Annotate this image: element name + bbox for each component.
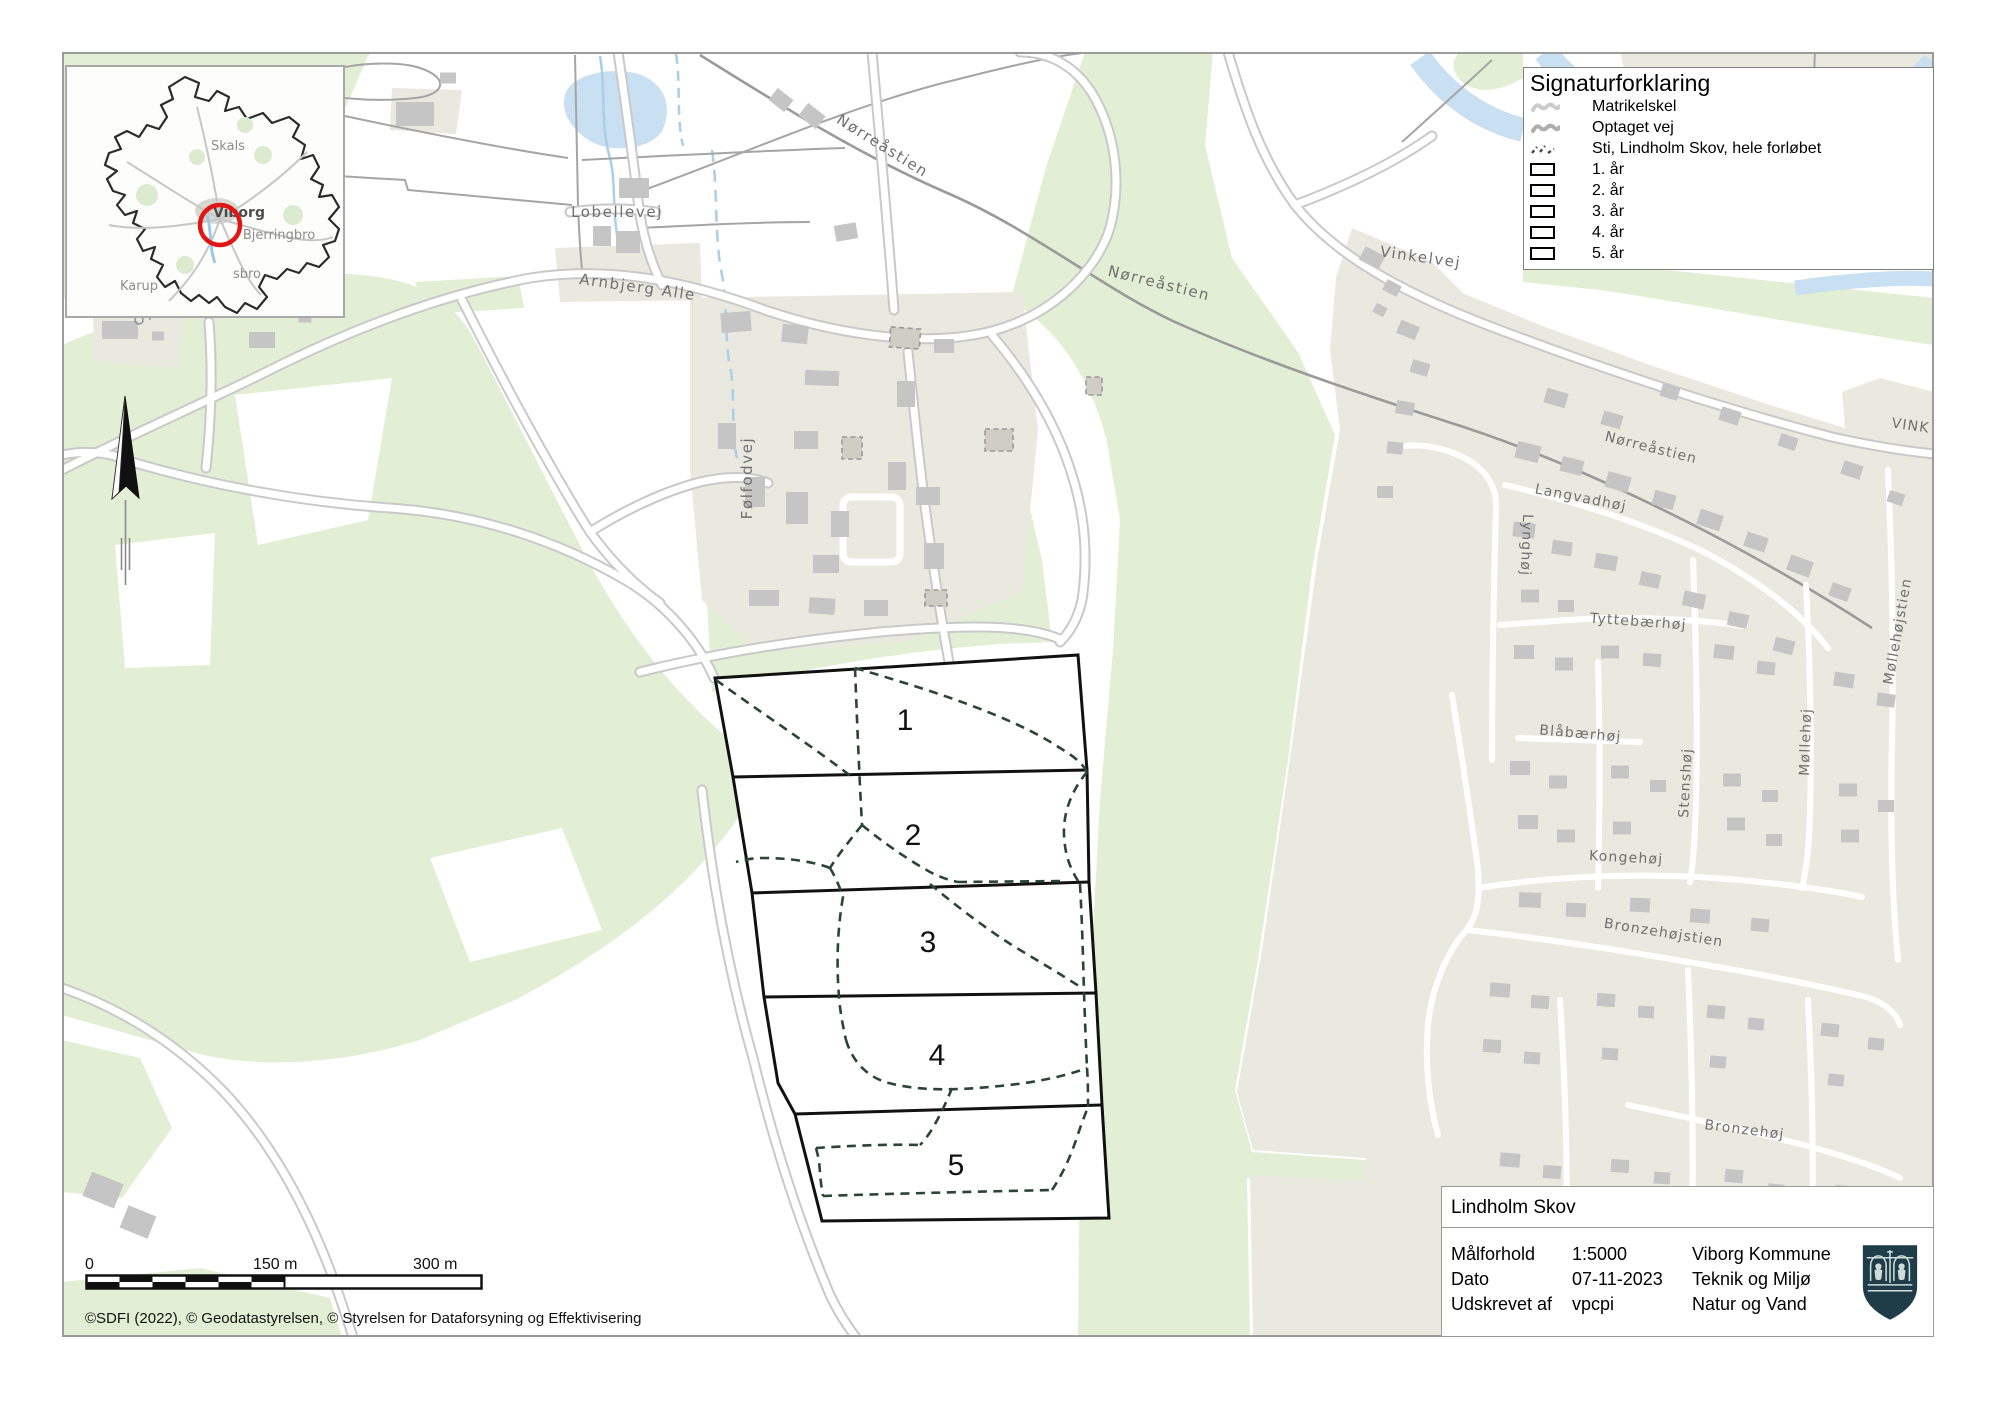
street-label: Lynghøj [1517,514,1535,577]
scale-label-end: 300 m [413,1256,457,1274]
info-row-value: vpcpi [1572,1292,1663,1317]
street-label: Lobellevej [571,203,663,221]
legend-item: 2. år [1530,180,1927,201]
building [249,332,275,348]
inset-label-skals: Skals [211,139,245,154]
building [1650,780,1666,792]
building [1490,982,1511,997]
building [102,321,138,339]
building [1597,993,1616,1007]
building [1820,1023,1839,1038]
viborg-kommune-logo [1859,1242,1921,1322]
inset-label-karup: Karup [120,279,158,294]
building [593,226,611,246]
building [831,511,849,537]
building [916,487,940,505]
building [1551,540,1573,557]
org-lines: Viborg Kommune Teknik og Miljø Natur og … [1692,1242,1831,1317]
info-row-label: Udskrevet af [1451,1292,1552,1317]
building [1543,1165,1562,1179]
building [1500,1152,1521,1167]
building [1867,1037,1884,1051]
building [1876,692,1896,707]
building [1748,1017,1765,1030]
building [805,370,840,386]
building [1601,646,1619,659]
building [1524,1051,1541,1064]
building [1611,766,1629,779]
building [1521,590,1539,603]
building [1514,645,1534,659]
building [1643,653,1662,667]
building [1613,822,1631,835]
building [152,332,164,341]
building [616,231,640,253]
legend-item: 5. år [1530,243,1927,264]
building [396,102,434,126]
legend-item: Matrikelskel [1530,96,1927,117]
building [1611,1159,1630,1173]
building [720,311,751,333]
info-row-label: Dato [1451,1267,1552,1292]
street-label: Møllehøj [1797,708,1815,776]
building [1518,815,1538,829]
parcel-number-4: 4 [929,1039,946,1072]
building [781,324,809,345]
building [1483,1039,1502,1053]
building [619,178,649,198]
info-values: 1:5000 07-11-2023 vpcpi [1572,1242,1663,1317]
building [1086,377,1102,395]
parcel-number-3: 3 [920,926,937,959]
building [1710,1055,1727,1068]
building [1766,834,1782,846]
legend-item-label: 2. år [1592,182,1624,200]
legend-item-label: 1. år [1592,161,1624,179]
year-3-swatch [1530,205,1592,218]
building [985,429,1013,451]
scale-bar: 0 150 m 300 m [85,1256,505,1292]
map-info-box: Målforhold Dato Udskrevet af 1:5000 07-1… [1441,1227,1934,1337]
legend-item: Sti, Lindholm Skov, hele forløbet [1530,138,1927,159]
legend-item-label: 3. år [1592,203,1624,221]
building [786,492,808,524]
parcel-number-2: 2 [905,819,922,852]
inset-municipality [105,77,339,313]
legend-item: Optaget vej [1530,117,1927,138]
building [842,437,862,459]
legend-item-label: Optaget vej [1592,119,1674,137]
legend-item-label: 4. år [1592,224,1624,242]
building [1827,1073,1844,1087]
building [924,543,944,569]
info-row-value: 1:5000 [1572,1242,1663,1267]
building [1878,800,1894,812]
building [1750,918,1769,933]
legend-title: Signaturforklaring [1530,70,1927,96]
building [1557,830,1575,843]
building [1654,1171,1671,1184]
info-labels: Målforhold Dato Udskrevet af [1451,1242,1552,1317]
building [1519,892,1542,908]
building [749,590,779,606]
scale-label-start: 0 [85,1256,94,1274]
building [808,597,835,615]
building [1756,661,1775,676]
building [1713,644,1734,660]
building [1377,486,1393,498]
building [889,327,920,349]
sti-dashed-icon [1530,141,1592,157]
info-row-label: Målforhold [1451,1242,1552,1267]
building [1833,672,1855,689]
parcel-number-1: 1 [897,704,914,737]
info-row-value: 07-11-2023 [1572,1267,1663,1292]
building [120,1205,157,1238]
map-title-box: Lindholm Skov [1441,1186,1934,1229]
building [769,88,794,112]
building [897,381,915,407]
legend-item: 4. år [1530,222,1927,243]
inset-label-bjerringbro: Bjerringbro [243,228,315,243]
building [1602,1047,1619,1060]
building [864,600,888,616]
legend-item-label: Sti, Lindholm Skov, hele forløbet [1592,140,1821,158]
org-line: Teknik og Miljø [1692,1267,1831,1292]
building [1510,761,1530,775]
building [794,431,818,449]
year-4-swatch [1530,226,1592,239]
inset-label-sbro: sbro [233,267,261,282]
copyright-text: ©SDFI (2022), © Geodatastyrelsen, © Styr… [85,1310,641,1327]
building [888,462,906,490]
building [1727,818,1745,831]
building [1706,1005,1725,1020]
building [798,103,825,129]
pond [564,71,667,148]
org-line: Viborg Kommune [1692,1242,1831,1267]
building [925,590,947,606]
legend-panel: Signaturforklaring Matrikelskel Optaget … [1523,67,1934,270]
building [934,339,954,353]
matrikelskel-wavy-icon [1530,99,1592,115]
legend-item-label: Matrikelskel [1592,98,1676,116]
org-line: Natur og Vand [1692,1292,1831,1317]
street-label: Følfodvej [738,437,756,520]
building [1555,658,1573,671]
building [440,73,456,84]
building [1531,995,1550,1009]
building [1690,908,1711,923]
building [1723,774,1741,787]
legend-item: 3. år [1530,201,1927,222]
legend-item-label: 5. år [1592,245,1624,263]
building [834,222,858,242]
building [1566,903,1586,918]
building [1386,441,1403,455]
building [1841,830,1859,843]
optaget-vej-wavy-icon [1530,120,1592,136]
inset-overview-map: Skals Viborg Bjerringbro sbro Karup [65,65,345,318]
building [1558,600,1574,612]
map-title: Lindholm Skov [1451,1197,1576,1219]
building [1638,1005,1655,1018]
building [813,555,839,573]
parcel-number-5: 5 [948,1149,965,1182]
year-1-swatch [1530,163,1592,176]
building [1549,776,1567,789]
building [1724,1169,1743,1184]
legend-item: 1. år [1530,159,1927,180]
building [718,423,736,449]
building [1630,897,1651,912]
building [1839,784,1857,797]
scale-bar-graphic [85,1274,485,1291]
scale-label-mid: 150 m [253,1256,297,1274]
building [1762,790,1778,802]
year-2-swatch [1530,184,1592,197]
year-5-swatch [1530,247,1592,260]
